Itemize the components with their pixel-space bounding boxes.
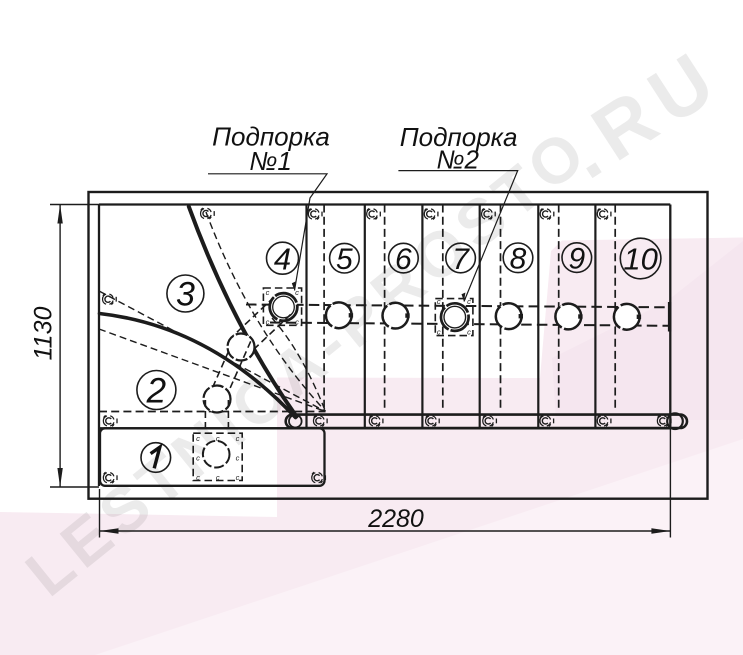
svg-text:c: c xyxy=(295,288,299,297)
svg-text:c: c xyxy=(236,473,240,482)
svg-text:1130: 1130 xyxy=(30,307,58,361)
svg-text:c: c xyxy=(236,454,240,463)
svg-text:3: 3 xyxy=(176,276,195,314)
svg-text:8: 8 xyxy=(510,243,527,276)
svg-text:№1: №1 xyxy=(249,146,292,176)
svg-text:c: c xyxy=(216,473,220,482)
svg-text:4: 4 xyxy=(274,241,291,276)
svg-text:c: c xyxy=(196,473,200,482)
svg-text:7: 7 xyxy=(452,243,470,276)
svg-text:2: 2 xyxy=(146,372,166,411)
svg-text:5: 5 xyxy=(336,243,353,276)
svg-text:c: c xyxy=(467,297,471,306)
svg-text:c: c xyxy=(196,434,200,443)
svg-text:c: c xyxy=(266,318,270,327)
svg-text:c: c xyxy=(295,318,299,327)
svg-text:c: c xyxy=(437,328,441,337)
svg-text:2280: 2280 xyxy=(367,505,424,533)
svg-text:9: 9 xyxy=(568,242,585,275)
svg-text:6: 6 xyxy=(395,243,412,276)
svg-text:c: c xyxy=(196,454,200,463)
svg-text:c: c xyxy=(467,328,471,337)
svg-text:c: c xyxy=(266,288,270,297)
svg-text:c: c xyxy=(216,434,220,443)
svg-text:c: c xyxy=(437,297,441,306)
svg-text:c: c xyxy=(236,434,240,443)
svg-text:10: 10 xyxy=(623,242,657,277)
